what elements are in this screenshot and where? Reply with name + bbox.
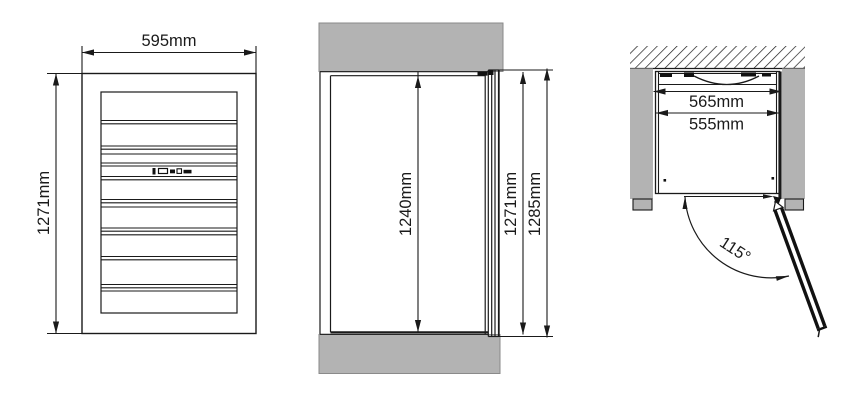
front-width-label: 595mm [141,32,196,50]
side-unit-height-label: 1271mm [502,172,520,236]
top-unit-width-dimension: 555mm [656,113,779,134]
niche-top-panel [319,23,503,72]
control-panel [153,168,192,175]
door-angle-label: 115° [716,233,753,266]
door-panel-outer [780,207,826,326]
wall-hatch [630,46,805,69]
side-recess-height-dimension: 1240mm [397,72,418,333]
wall-foot-right [785,199,804,210]
installation-diagram: 595mm 1271mm [0,0,849,420]
control-panel-button [170,170,175,174]
condenser-block [684,73,694,78]
door-panel-inner [773,210,819,329]
front-height-dimension: 1271mm [35,74,82,334]
hinge-detail [489,71,494,76]
condenser-block [741,73,756,77]
screw-dot [664,179,667,182]
condenser-block [762,73,771,77]
side-view: 1240mm 1271mm 1285mm [319,23,553,374]
installation-diagram-page: 595mm 1271mm [0,0,849,420]
front-width-dimension: 595mm [82,32,256,74]
door-swing-dimension: 115° [683,197,790,281]
condenser-pipe-arc [694,76,759,85]
wall-foot-left [633,199,652,210]
hinge-detail [478,72,488,76]
screw-dot [772,177,775,180]
top-recess-width-label: 565mm [689,93,744,111]
shelf-lines [101,121,237,292]
control-panel-button [177,169,182,174]
side-wall-left [630,69,653,200]
cabinet-outline [82,74,256,334]
condenser-block [660,73,672,77]
control-panel-button [153,168,156,175]
condenser-detail [659,73,777,85]
front-height-label: 1271mm [35,171,53,235]
niche-bottom-panel [319,335,500,374]
top-unit-width-label: 555mm [689,116,744,134]
control-panel-button [184,170,192,174]
reference-arrowhead [763,194,774,198]
control-panel-display [159,169,168,174]
arc-arrowhead [683,197,688,210]
side-wall-right [782,69,805,200]
top-view: 565mm 555mm 115° [630,46,829,337]
front-view: 595mm 1271mm [35,32,256,334]
side-overall-height-label: 1285mm [526,172,544,236]
side-recess-height-label: 1240mm [397,172,415,236]
top-recess-width-dimension: 565mm [654,92,782,112]
side-overall-height-dimension: 1285mm [526,69,547,338]
arc-arrowhead [776,276,789,281]
open-door [769,200,829,337]
door-handle-tick [816,330,821,337]
